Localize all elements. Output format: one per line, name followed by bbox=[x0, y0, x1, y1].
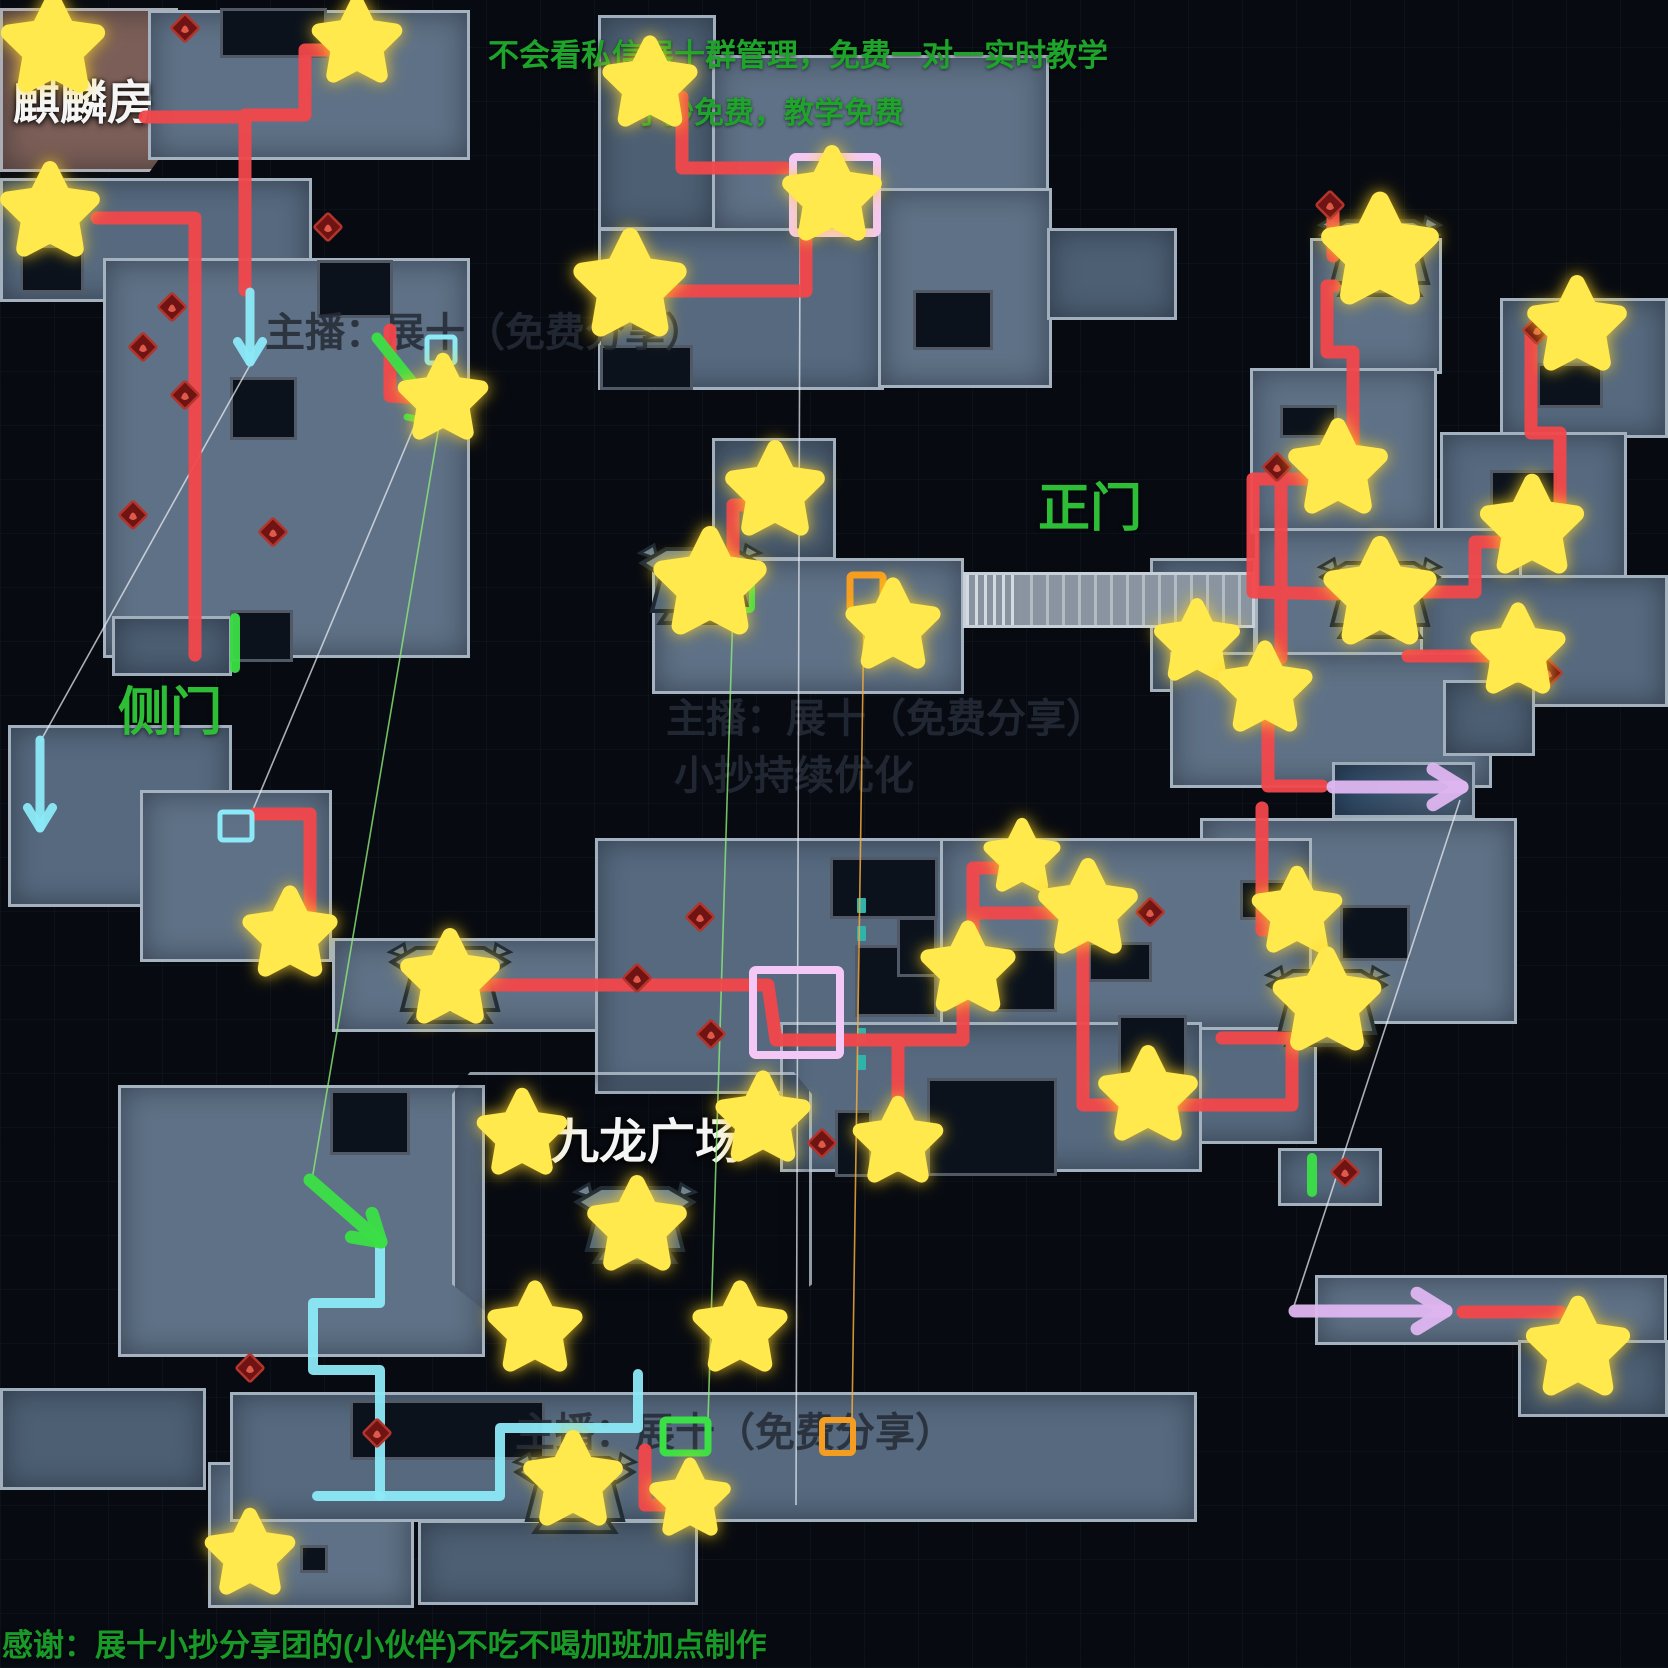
star-icon bbox=[1478, 610, 1558, 686]
star-icon bbox=[484, 1095, 560, 1167]
game-map-screenshot: 麒麟房 不会看私信展十群管理，免费一对一实时教学 小抄免费，教学免费 主播：展十… bbox=[0, 0, 1668, 1668]
red-mark-icon bbox=[686, 903, 714, 931]
cyan-rect-marker bbox=[220, 812, 252, 840]
orange-rect-marker bbox=[822, 1420, 853, 1453]
red-mark-icon bbox=[236, 1354, 264, 1382]
red-mark-icon bbox=[314, 213, 342, 241]
red-mark-icon bbox=[119, 501, 147, 529]
star-icon bbox=[1161, 605, 1233, 674]
red-mark-icon bbox=[129, 333, 157, 361]
star-icon bbox=[860, 1103, 936, 1175]
star-icon bbox=[1296, 426, 1380, 506]
green-rect-marker bbox=[663, 1420, 708, 1453]
red-mark-icon bbox=[363, 1419, 391, 1447]
star-icon bbox=[9, 1, 97, 84]
star-icon bbox=[1259, 873, 1335, 945]
star-icon bbox=[212, 1515, 288, 1587]
star-icon bbox=[790, 153, 874, 233]
star-icon bbox=[1225, 648, 1305, 724]
star-icon bbox=[990, 824, 1055, 886]
red-mark-icon bbox=[158, 293, 186, 321]
star-icon bbox=[1106, 1053, 1190, 1133]
annotation-layer bbox=[0, 0, 1668, 1668]
star-icon bbox=[723, 1078, 803, 1154]
star-icon bbox=[1535, 283, 1619, 363]
star-icon bbox=[250, 893, 330, 969]
red-mark-icon bbox=[1136, 898, 1164, 926]
red-mark-icon bbox=[1316, 191, 1344, 219]
star-icon bbox=[1330, 201, 1429, 295]
red-mark-icon bbox=[171, 14, 199, 42]
star-icon bbox=[656, 1464, 725, 1529]
red-mark-icon bbox=[808, 1129, 836, 1157]
star-icon bbox=[8, 169, 92, 249]
star-icon bbox=[1281, 955, 1372, 1042]
star-icon bbox=[319, 3, 395, 75]
marker-rectangles bbox=[220, 157, 883, 1453]
star-icon bbox=[531, 1438, 615, 1518]
star-icon bbox=[405, 360, 481, 432]
star-icon bbox=[495, 1288, 575, 1364]
star-icon bbox=[853, 585, 933, 661]
star-icon bbox=[610, 43, 690, 119]
star-icon bbox=[928, 928, 1008, 1004]
star-icon bbox=[733, 448, 817, 528]
star-icon bbox=[1046, 866, 1130, 946]
star-icon bbox=[582, 237, 677, 328]
star-icon bbox=[1332, 545, 1427, 636]
red-mark-icon bbox=[259, 518, 287, 546]
